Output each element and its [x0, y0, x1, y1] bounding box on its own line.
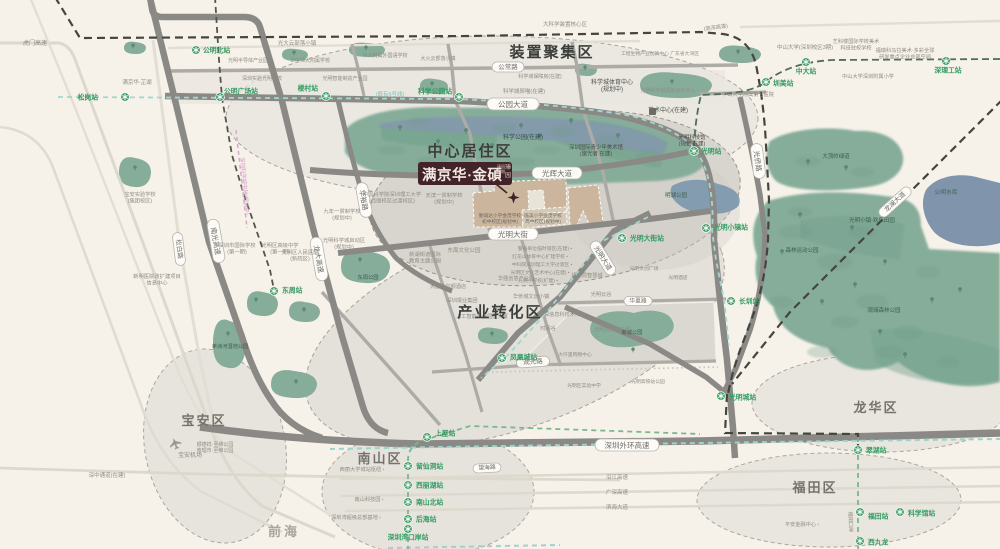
svg-text:光明科学城国际会议中心: 光明科学城国际会议中心	[640, 87, 695, 94]
svg-text:产业转化区: 产业转化区	[457, 303, 542, 321]
svg-text:后海站: 后海站	[416, 514, 437, 523]
svg-text:光明城站: 光明城站	[728, 392, 756, 401]
svg-text:红花山体育中心扩建学校 •: 红花山体育中心扩建学校 •	[512, 253, 568, 260]
svg-text:满京华·金碩: 满京华·金碩	[422, 166, 502, 184]
svg-text:光明大街站: 光明大街站	[629, 233, 664, 242]
svg-text:凤凰城站: 凤凰城站	[510, 352, 537, 361]
svg-text:平安金融中心 ‹: 平安金融中心 ‹	[785, 520, 820, 528]
svg-text:深圳外环高速: 深圳外环高速	[605, 440, 650, 450]
svg-text:南山北站: 南山北站	[416, 497, 443, 506]
svg-text:光明半导体产业园: 光明半导体产业园	[228, 57, 268, 64]
svg-text:沿江高速: 沿江高速	[606, 473, 629, 481]
svg-text:科学公园(在建): 科学公园(在建)	[503, 133, 543, 141]
svg-text:招商局智慧城: 招商局智慧城	[571, 271, 603, 279]
svg-text:广深高速: 广深高速	[606, 488, 629, 496]
svg-text:中大附属外国语学校: 中大附属外国语学校	[362, 52, 407, 59]
svg-text:大顶岭绿道: 大顶岭绿道	[822, 152, 850, 160]
svg-text:森林运动公园: 森林运动公园	[785, 246, 819, 254]
svg-text:宝安区: 宝安区	[181, 413, 226, 428]
svg-text:四期: 四期	[497, 168, 505, 174]
svg-text:深圳湾超级总部基地 ‹: 深圳湾超级总部基地 ‹	[331, 513, 381, 521]
svg-text:华侨城文创小镇: 华侨城文创小镇	[513, 292, 549, 300]
svg-text:滨海大道: 滨海大道	[606, 503, 629, 511]
svg-text:翠湖站: 翠湖站	[866, 445, 887, 454]
svg-text:光明文创广场: 光明文创广场	[630, 265, 659, 272]
svg-text:警备单位临时辖区(在建) •: 警备单位临时辖区(在建) •	[518, 245, 572, 252]
svg-text:深圳报业集团: 深圳报业集团	[446, 296, 477, 304]
svg-text:瑧: 瑧	[505, 163, 511, 171]
svg-text:留仙洞站: 留仙洞站	[416, 461, 443, 470]
svg-text:科学公园站: 科学公园站	[418, 86, 452, 95]
svg-text:光明站: 光明站	[700, 146, 722, 155]
svg-text:中科院深圳理工大学过渡区 •: 中科院深圳理工大学过渡区 •	[512, 261, 573, 268]
svg-text:长圳站: 长圳站	[739, 296, 760, 305]
svg-text:临美小学金茂学校高中校区(规划中): 临美小学金茂学校高中校区(规划中)	[524, 212, 562, 225]
svg-text:光明酒店: 光明酒店	[668, 274, 687, 281]
svg-text:中山大学深圳附属小学: 中山大学深圳附属小学	[842, 72, 894, 80]
svg-text:光明小镇·欢乐田园: 光明小镇·欢乐田园	[849, 216, 895, 224]
svg-text:华夏路: 华夏路	[629, 296, 647, 304]
svg-text:光明小镇站: 光明小镇站	[713, 222, 748, 231]
svg-text:公明北站: 公明北站	[203, 45, 230, 54]
svg-text:新湖街道国际教育主题公园: 新湖街道国际教育主题公园	[409, 250, 441, 265]
svg-text:西丽大学城站枢纽 ‹: 西丽大学城站枢纽 ‹	[340, 465, 385, 473]
svg-text:松岗站: 松岗站	[78, 92, 99, 101]
svg-text:光明区实验中学: 光明区实验中学	[567, 382, 601, 389]
svg-text:(既有6号线): (既有6号线)	[376, 90, 405, 98]
svg-text:公明水库: 公明水库	[934, 188, 957, 196]
svg-text:光明科技馆(规划 在建): 光明科技馆(规划 在建)	[679, 133, 707, 148]
svg-text:光明区文化艺术中心(在建) •: 光明区文化艺术中心(在建) •	[511, 269, 570, 276]
svg-text:福瑞科马拉美术·多彩全球研发重点企业总部空间: 福瑞科马拉美术·多彩全球研发重点企业总部空间	[876, 46, 936, 60]
svg-text:虎门高速: 虎门高速	[23, 39, 47, 47]
svg-text:公园大道: 公园大道	[498, 99, 528, 109]
svg-text:科学城郧喵(在建): 科学城郧喵(在建)	[503, 87, 545, 95]
svg-text:深圳湾口岸站: 深圳湾口岸站	[388, 532, 429, 541]
svg-text:东周文化公园: 东周文化公园	[447, 246, 481, 254]
svg-text:南山科技园 ‹: 南山科技园 ‹	[354, 495, 383, 503]
svg-text:顺德祥·至维公园南理市·至维公园: 顺德祥·至维公园南理市·至维公园	[197, 441, 234, 454]
svg-text:光辉大道: 光辉大道	[542, 168, 572, 178]
svg-text:东周站: 东周站	[282, 285, 303, 294]
svg-text:深理工站: 深理工站	[934, 65, 961, 74]
svg-text:明湖公园: 明湖公园	[665, 191, 688, 199]
svg-text:光明大街: 光明大街	[498, 229, 528, 239]
svg-text:龙华区: 龙华区	[853, 400, 898, 415]
svg-text:科学城保障房(在建): 科学城保障房(在建)	[518, 73, 562, 80]
svg-text:光明高铁站公园: 光明高铁站公园	[631, 378, 665, 385]
svg-text:中国科学院深圳理工大学(西丽校区过渡校区): 中国科学院深圳理工大学(西丽校区过渡校区)	[363, 190, 421, 205]
svg-text:中心居住区: 中心居住区	[427, 142, 512, 160]
svg-text:光大云部落小镇: 光大云部落小镇	[278, 39, 317, 47]
svg-text:光明云谷: 光明云谷	[591, 290, 613, 298]
svg-text:中山大学(深圳校区3期): 中山大学(深圳校区3期)	[777, 43, 833, 51]
svg-text:深圳实验光明学校: 深圳实验光明学校	[242, 75, 282, 82]
svg-text:中山大学附属第七医院: 中山大学附属第七医院	[722, 90, 775, 98]
svg-text:勤诚达小学金茂学校初中校区(规划中): 勤诚达小学金茂学校初中校区(规划中)	[479, 212, 522, 225]
svg-text:时间谷: 时间谷	[540, 324, 556, 332]
svg-text:茅洲河湿地公园: 茅洲河湿地公园	[212, 342, 248, 350]
svg-text:圳美站: 圳美站	[773, 78, 794, 87]
svg-text:园: 园	[505, 172, 511, 179]
svg-text:上屋站: 上屋站	[435, 428, 456, 437]
svg-text:光明智能制造产业园: 光明智能制造产业园	[322, 75, 367, 82]
svg-text:科学馆站: 科学馆站	[908, 508, 935, 517]
svg-text:大唐希尔顿酒店: 大唐希尔顿酒店	[430, 282, 466, 290]
svg-text:东周公园: 东周公园	[357, 273, 378, 281]
svg-text:宝安实验学校(集团校区): 宝安实验学校(集团校区)	[124, 190, 155, 204]
svg-text:西九龙: 西九龙	[868, 537, 889, 546]
svg-text:前海: 前海	[268, 524, 300, 539]
svg-text:满京华·芷湖: 满京华·芷湖	[122, 78, 152, 86]
svg-text:公常路: 公常路	[498, 62, 518, 71]
svg-text:福田站: 福田站	[867, 511, 889, 520]
svg-text:楼村站: 楼村站	[298, 83, 319, 92]
svg-text:广深信息科技术中心: 广深信息科技术中心	[539, 310, 586, 318]
svg-text:光明小学校(扩建) •: 光明小学校(扩建) •	[518, 277, 558, 284]
svg-text:大仟里购物中心: 大仟里购物中心	[558, 351, 592, 358]
svg-text:公明广场站: 公明广场站	[224, 86, 258, 95]
svg-text:工程生物产业创新中心 广东省大湾区: 工程生物产业创新中心 广东省大湾区	[621, 50, 699, 57]
svg-text:新城公园: 新城公园	[622, 328, 643, 336]
svg-text:装置聚集区: 装置聚集区	[508, 43, 594, 61]
svg-text:深中通道(在建): 深中通道(在建)	[89, 471, 126, 479]
svg-text:大火云部落小镇: 大火云部落小镇	[420, 55, 455, 62]
svg-text:南山区: 南山区	[357, 451, 402, 466]
svg-text:西丽湖站: 西丽湖站	[416, 480, 443, 489]
svg-text:福田区: 福田区	[791, 480, 837, 495]
svg-text:中大站: 中大站	[796, 66, 817, 75]
svg-text:观澜森林公园: 观澜森林公园	[867, 306, 901, 314]
svg-text:大科学装置核心区: 大科学装置核心区	[543, 20, 588, 28]
svg-text:华中师大附属学校: 华中师大附属学校	[290, 57, 330, 64]
